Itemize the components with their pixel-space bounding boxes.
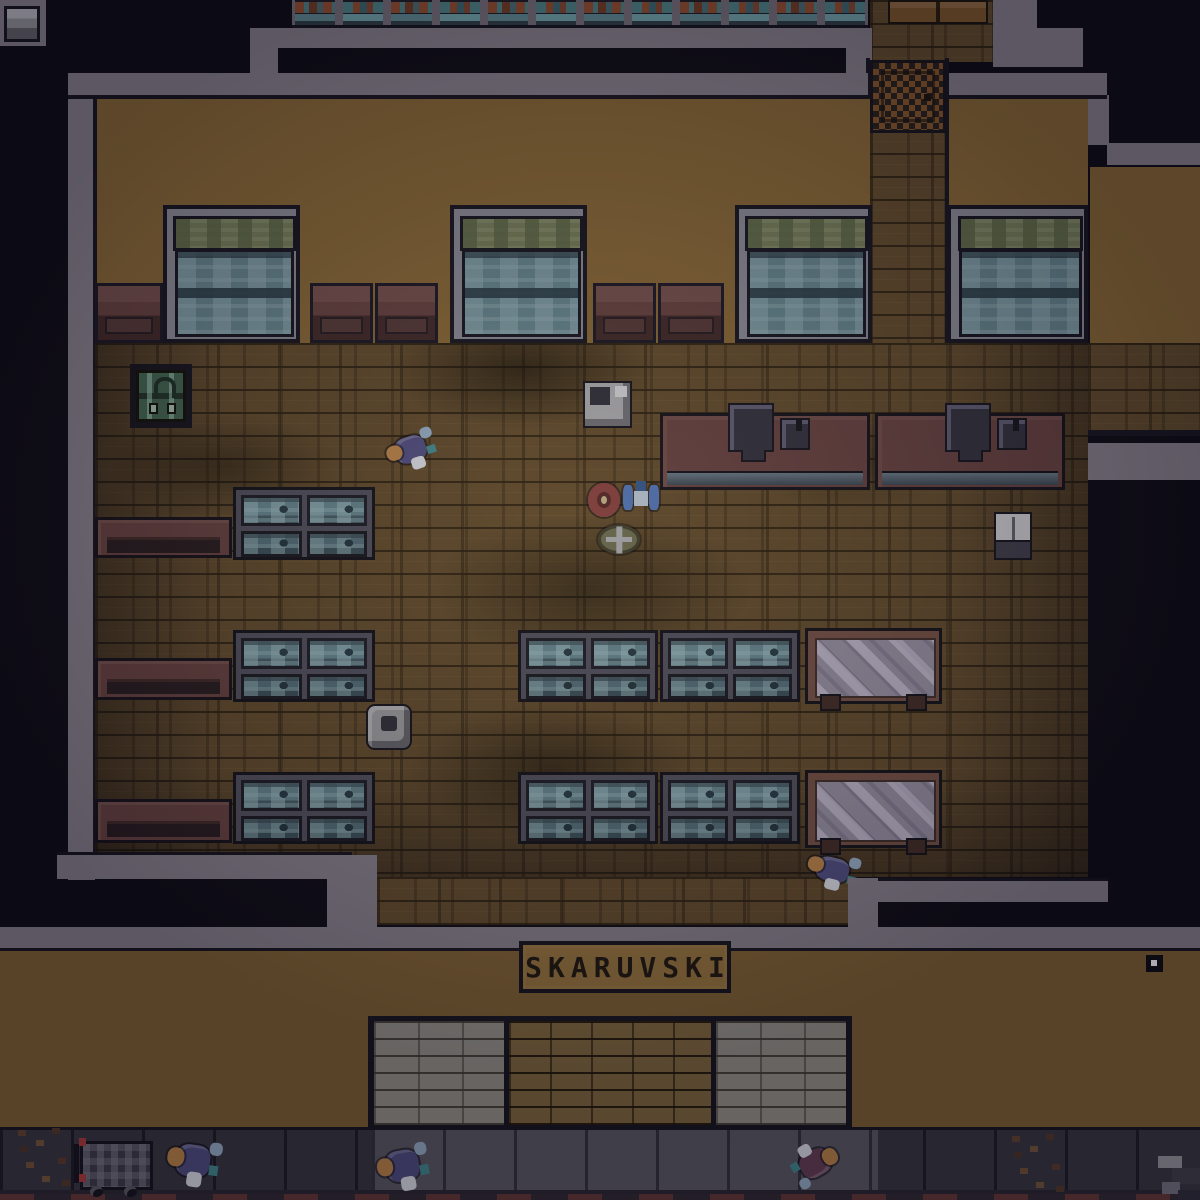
north-corridor-floor xyxy=(870,130,945,345)
window-glass-pane xyxy=(462,249,582,337)
register-slot xyxy=(796,420,802,431)
white-fridge[interactable] xyxy=(994,512,1032,560)
item-part xyxy=(623,485,633,510)
shop-window xyxy=(163,205,300,343)
back-room-cabinet[interactable] xyxy=(888,0,988,24)
back-room-wall-right xyxy=(993,0,1037,67)
table-glass xyxy=(815,780,936,842)
register-base xyxy=(958,450,983,463)
shop-wall-bottom-right-post xyxy=(848,878,878,927)
green-chest[interactable] xyxy=(136,370,186,422)
display-window xyxy=(632,0,672,25)
window-transom-pane xyxy=(745,216,867,252)
case-glass xyxy=(241,638,302,669)
case-glass xyxy=(733,638,793,669)
case-glass xyxy=(307,780,368,811)
facade-wall-left xyxy=(0,1021,372,1127)
case-glass xyxy=(526,638,586,669)
display-window xyxy=(777,0,817,25)
back-room-wall-right-ext xyxy=(1037,28,1083,67)
cash-register[interactable] xyxy=(945,403,991,452)
chest-clasp xyxy=(167,403,176,414)
facade-wall-right xyxy=(848,1021,1200,1127)
wall-bench[interactable] xyxy=(95,517,232,558)
leaf-debris xyxy=(1012,1136,1074,1196)
cart-handle xyxy=(74,1144,79,1183)
case-glass xyxy=(668,780,728,811)
case-glass xyxy=(526,780,586,811)
case-glass xyxy=(241,495,302,526)
wall-cabinet[interactable] xyxy=(95,283,163,343)
north-building-wall xyxy=(268,28,868,48)
character-accent xyxy=(186,1171,203,1188)
glass-table[interactable] xyxy=(805,628,942,704)
junk-part xyxy=(1178,1190,1200,1200)
fridge-base xyxy=(996,540,1030,558)
case-glass xyxy=(307,816,368,841)
character-accent-teal xyxy=(419,1164,430,1175)
case-glass xyxy=(307,638,368,669)
east-corridor-wall-top xyxy=(1107,143,1200,165)
case-glass xyxy=(591,816,651,841)
red-ring-item[interactable] xyxy=(588,483,620,517)
case-glass xyxy=(307,674,368,699)
display-case[interactable] xyxy=(233,630,375,702)
window-transom-pane xyxy=(460,216,582,252)
case-glass xyxy=(307,531,368,557)
case-glass xyxy=(733,780,793,811)
entrance-panel-center[interactable] xyxy=(509,1021,711,1125)
display-window xyxy=(680,0,720,25)
olive-sack-item[interactable] xyxy=(598,525,640,554)
entrance-panel-right[interactable] xyxy=(716,1021,846,1125)
cash-register-small[interactable] xyxy=(997,418,1027,450)
display-case[interactable] xyxy=(660,630,800,702)
window-transom-pane xyxy=(958,216,1084,252)
shopping-cart[interactable] xyxy=(74,1130,152,1198)
case-glass xyxy=(241,816,302,841)
shop-window xyxy=(735,205,872,343)
east-corridor-wall-bottom xyxy=(1088,443,1200,480)
character-accent-teal xyxy=(426,444,437,455)
character-accent-teal xyxy=(208,1165,219,1176)
wall-marker-dot xyxy=(1146,955,1163,972)
table-leg xyxy=(906,838,927,855)
case-glass xyxy=(591,780,651,811)
rug-handle-dot xyxy=(924,94,931,101)
character-hand xyxy=(413,1141,427,1156)
window-glass-pane xyxy=(175,249,295,337)
cart-handle-accent xyxy=(79,1174,87,1182)
case-glass xyxy=(591,638,651,669)
pedestrian-character[interactable] xyxy=(372,1134,437,1198)
case-glass xyxy=(733,674,793,699)
counter-front xyxy=(667,471,863,485)
chest-clasp xyxy=(149,403,158,414)
case-glass xyxy=(668,638,728,669)
window-glass-pane xyxy=(747,249,867,337)
character-hand xyxy=(418,425,433,439)
neighbor-window xyxy=(4,6,40,42)
table-leg xyxy=(906,694,927,711)
trash-can[interactable] xyxy=(366,704,412,750)
east-corridor-floor xyxy=(1088,343,1200,430)
shop-wall-bottom-right xyxy=(856,878,1108,902)
wall-bench[interactable] xyxy=(95,658,232,700)
case-glass xyxy=(241,674,302,699)
shop-wall-top xyxy=(68,73,868,97)
shop-window xyxy=(450,205,587,343)
display-case[interactable] xyxy=(518,772,658,844)
east-corridor-wall xyxy=(1090,167,1200,343)
shop-wall-west xyxy=(68,97,95,880)
case-glass xyxy=(733,816,793,841)
display-case[interactable] xyxy=(233,487,375,560)
window-transom-pane xyxy=(173,216,295,252)
shop-sign-text: SKARUVSKI xyxy=(519,951,731,984)
shop-floor-entry xyxy=(377,877,855,925)
display-window xyxy=(536,0,576,25)
case-glass xyxy=(668,674,728,699)
marker-dot xyxy=(1151,960,1157,966)
north-shop-window-strip xyxy=(292,0,868,28)
character-accent xyxy=(410,455,427,471)
east-corridor-outline xyxy=(1088,430,1200,436)
sack-cross xyxy=(616,526,622,553)
fridge-door-seam xyxy=(1012,517,1014,540)
window-glass-pane xyxy=(959,249,1082,337)
display-case[interactable] xyxy=(233,772,375,844)
display-window xyxy=(295,0,335,25)
display-window xyxy=(440,0,480,25)
pedestrian-character[interactable] xyxy=(162,1129,227,1193)
trash-opening xyxy=(381,716,398,731)
junk-pile xyxy=(1158,1148,1200,1200)
shop-wall-top-right xyxy=(949,73,1107,97)
display-case[interactable] xyxy=(660,772,800,844)
character-hand xyxy=(848,857,862,870)
display-window xyxy=(729,0,769,25)
item-part xyxy=(634,491,648,506)
cart-basket xyxy=(80,1141,153,1191)
case-glass xyxy=(526,816,586,841)
cart-wheel xyxy=(90,1186,103,1197)
entrance-panel-left[interactable] xyxy=(374,1021,504,1125)
cart-wheel xyxy=(124,1186,137,1197)
case-glass xyxy=(241,780,302,811)
cash-register-small[interactable] xyxy=(780,418,810,450)
case-glass xyxy=(526,674,586,699)
glass-table[interactable] xyxy=(805,770,942,848)
machine-panel xyxy=(615,386,628,397)
wall-cabinet[interactable] xyxy=(375,283,438,343)
character-accent xyxy=(400,1175,417,1192)
display-window xyxy=(584,0,624,25)
item-part xyxy=(636,481,647,491)
display-window xyxy=(343,0,383,25)
machine-screen xyxy=(590,387,610,405)
blue-bundle-item[interactable] xyxy=(623,481,659,514)
wall-cabinet[interactable] xyxy=(658,283,724,343)
shop-window xyxy=(947,205,1088,343)
register-slot xyxy=(1013,420,1019,431)
counter-front xyxy=(882,471,1059,485)
shop-wall-bottom-left-post xyxy=(327,855,377,927)
display-window xyxy=(488,0,528,25)
register-base xyxy=(741,450,766,463)
display-case[interactable] xyxy=(518,630,658,702)
leaf-debris xyxy=(18,1130,78,1196)
character-hand xyxy=(209,1142,223,1157)
case-glass xyxy=(591,674,651,699)
display-window xyxy=(391,0,431,25)
gray-machine[interactable] xyxy=(583,381,632,428)
shop-sign: SKARUVSKI xyxy=(519,941,731,993)
neighbor-building-corner xyxy=(0,0,46,46)
game-viewport: SKARUVSKI xyxy=(0,0,1200,1200)
case-glass xyxy=(241,531,302,557)
shop-wall-bottom-left xyxy=(57,852,352,879)
table-glass xyxy=(815,638,936,698)
junk-part xyxy=(1158,1156,1182,1168)
cash-register[interactable] xyxy=(728,403,774,452)
item-part xyxy=(649,485,659,510)
cart-handle-accent xyxy=(79,1138,87,1146)
display-window xyxy=(825,0,865,25)
doormat-rug[interactable] xyxy=(870,60,946,133)
wall-cabinet[interactable] xyxy=(593,283,656,343)
case-glass xyxy=(307,495,368,526)
chest-lock xyxy=(154,377,176,398)
wall-bench[interactable] xyxy=(95,799,232,843)
table-leg xyxy=(820,694,841,711)
case-glass xyxy=(668,816,728,841)
wall-cabinet[interactable] xyxy=(310,283,373,343)
wall-connector xyxy=(250,28,278,76)
